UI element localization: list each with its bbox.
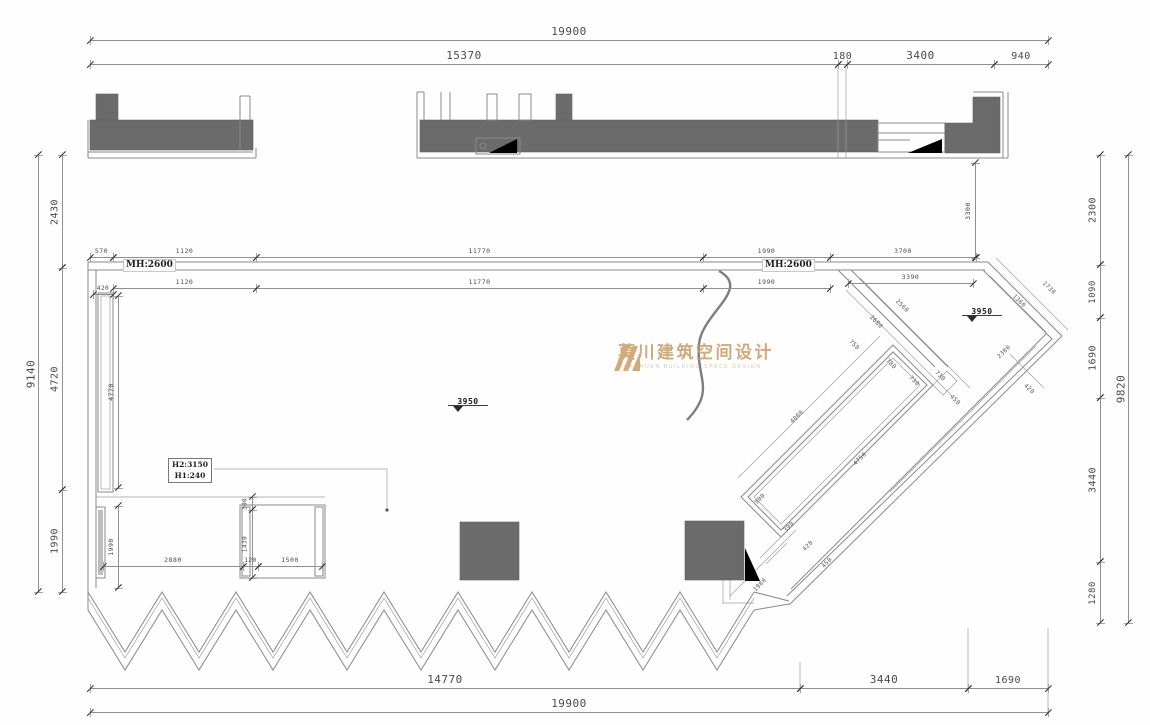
- floor-level-marker: 3950: [448, 397, 488, 412]
- dimension-label: 1120: [176, 247, 194, 255]
- dimension-label: 14770: [427, 673, 463, 686]
- dimension-label: 4720: [50, 366, 61, 392]
- dimension-label: 1120: [176, 278, 194, 286]
- height-note-h1: H1:240: [172, 471, 208, 482]
- level-triangle-icon: [453, 406, 463, 412]
- floor-plan-drawing: [0, 0, 1150, 725]
- dimension-label: 1990: [758, 247, 776, 255]
- column-left: [460, 522, 519, 580]
- dimension-label: 940: [1011, 51, 1031, 62]
- leader-line: [214, 469, 387, 508]
- dimension-label: 3440: [870, 673, 899, 686]
- dimension-label: 1990: [758, 278, 776, 286]
- dimension-label: 11770: [468, 247, 490, 255]
- dimension-label: 1990: [107, 538, 115, 556]
- level-triangle-icon: [967, 316, 977, 322]
- dimension-label: 11770: [468, 278, 490, 286]
- dimension-label: 15370: [446, 49, 482, 62]
- dimension-label: 1690: [995, 675, 1021, 686]
- dimension-label: 3440: [1088, 467, 1099, 493]
- leader-arrow: [385, 508, 388, 511]
- dimension-label: 3700: [894, 247, 912, 255]
- height-note-h2: H2:3150: [172, 460, 208, 471]
- dimension-label: 1280: [1088, 581, 1098, 605]
- watermark: 莫川建筑空间设计 MOKCHUEN BUILDING SPACE DESIGN: [612, 343, 774, 370]
- dimension-label: 2430: [50, 198, 61, 224]
- dimension-label: 3300: [964, 202, 972, 220]
- dimension-label: 1990: [50, 528, 61, 554]
- dimension-label: 1690: [1088, 345, 1099, 371]
- dimension-label: 2880: [164, 556, 182, 564]
- floor-plan-canvas: MH:2600 MH:2600 H2:3150 H1:240 莫川建筑空间设计 …: [0, 0, 1150, 725]
- dimension-label: 9140: [25, 359, 38, 388]
- floor-level-marker: 3950: [962, 307, 1002, 322]
- dimension-label: 420: [97, 285, 109, 292]
- dimension-label: 1090: [1088, 280, 1098, 304]
- top-wall-section-right: [417, 92, 1008, 158]
- dimension-label: 570: [95, 247, 108, 255]
- dimension-label: 4770: [107, 383, 115, 401]
- dimension-label: 300: [242, 497, 249, 509]
- ceiling-height-label-right: MH:2600: [762, 259, 815, 272]
- dimension-label: 3400: [906, 49, 935, 62]
- dimension-label: 3390: [902, 273, 920, 281]
- dimension-label: 1500: [281, 556, 299, 564]
- dimension-label: 120: [244, 557, 256, 564]
- dimension-label: 2300: [1088, 197, 1099, 223]
- sawtooth-storefront: [88, 588, 789, 670]
- dimension-label: 19900: [551, 25, 587, 38]
- column-right: [685, 521, 744, 580]
- dimension-label: 19900: [551, 697, 587, 710]
- top-wall-section-left: [88, 94, 256, 158]
- dimension-label: 1430: [242, 536, 249, 552]
- logo-icon: [612, 343, 642, 373]
- room-outline: [88, 262, 1062, 605]
- door-swing-marker: [745, 548, 760, 581]
- dimension-label: 9820: [1115, 375, 1128, 404]
- height-note-box: H2:3150 H1:240: [168, 458, 212, 483]
- ceiling-height-label-left: MH:2600: [123, 259, 176, 272]
